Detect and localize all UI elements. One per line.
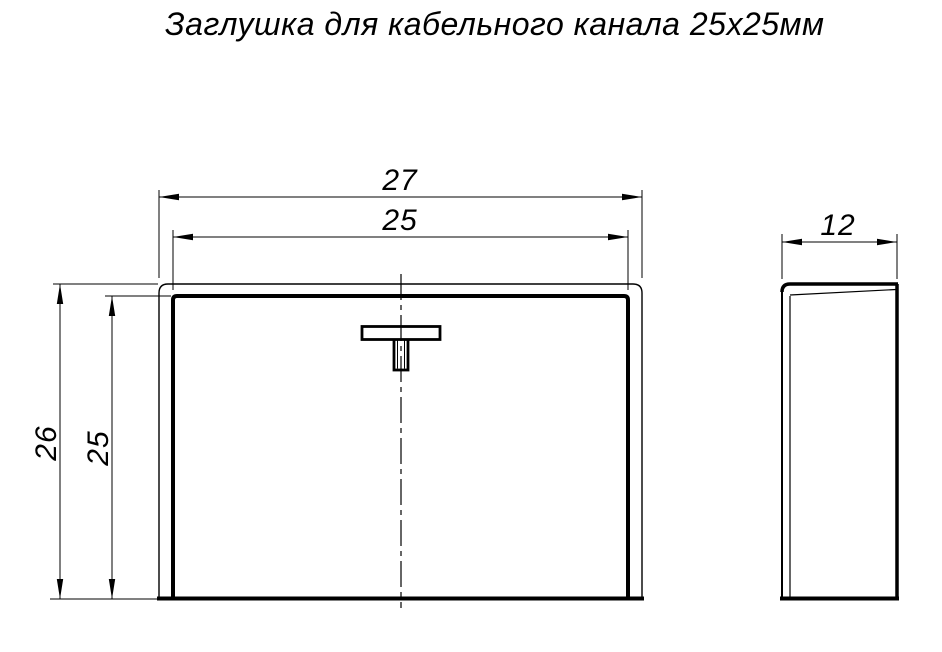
arrowhead-bottom bbox=[109, 579, 115, 599]
front-view bbox=[157, 274, 644, 608]
dim-label-side-depth: 12 bbox=[820, 209, 855, 242]
dimension-front-inner-height: 25 bbox=[82, 296, 171, 599]
arrowhead-left bbox=[782, 239, 802, 245]
drawing-canvas: 27 25 26 25 bbox=[0, 0, 942, 652]
dim-label-front-outer-height: 26 bbox=[30, 425, 63, 461]
arrowhead-left bbox=[159, 194, 179, 200]
arrowhead-left bbox=[173, 234, 193, 240]
side-view bbox=[780, 284, 899, 599]
side-inner-lip-slant bbox=[790, 290, 896, 296]
drawing-sheet: Заглушка для кабельного канала 25х25мм bbox=[0, 0, 942, 652]
arrowhead-right bbox=[622, 194, 642, 200]
arrowhead-top bbox=[57, 284, 63, 304]
dim-label-front-outer-width: 27 bbox=[381, 164, 418, 197]
dimension-side-depth: 12 bbox=[782, 209, 897, 279]
arrowhead-right bbox=[877, 239, 897, 245]
dim-label-front-inner-width: 25 bbox=[381, 204, 417, 237]
arrowhead-top bbox=[109, 296, 115, 316]
dim-label-front-inner-height: 25 bbox=[82, 430, 115, 466]
arrowhead-bottom bbox=[57, 579, 63, 599]
arrowhead-right bbox=[608, 234, 628, 240]
